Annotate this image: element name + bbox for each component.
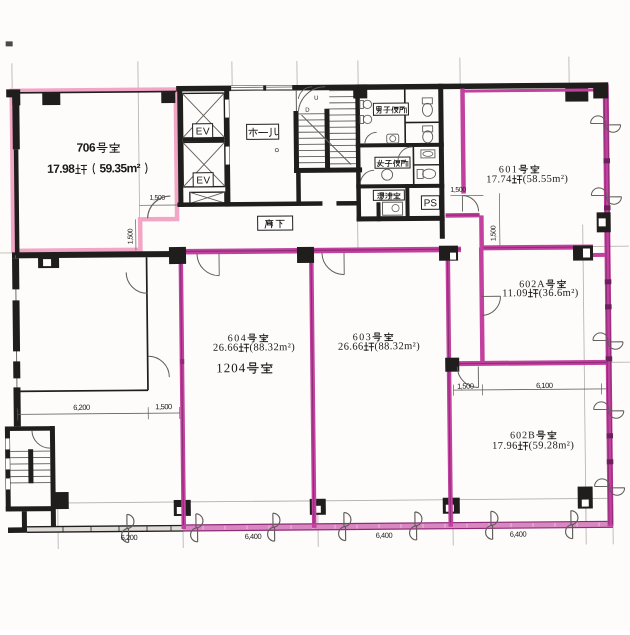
svg-text:D: D bbox=[305, 108, 310, 114]
svg-text:1,500: 1,500 bbox=[490, 225, 497, 241]
svg-text:6,400: 6,400 bbox=[510, 530, 527, 539]
svg-text:17.74: 17.74 bbox=[486, 174, 512, 185]
svg-text:1204: 1204 bbox=[216, 360, 246, 375]
svg-text:59.35m²: 59.35m² bbox=[99, 161, 141, 175]
svg-text:6,400: 6,400 bbox=[376, 531, 393, 540]
svg-text:6,200: 6,200 bbox=[73, 403, 90, 412]
svg-text:(36.6m²): (36.6m²) bbox=[539, 288, 579, 299]
svg-text:(58.55m²): (58.55m²) bbox=[523, 174, 569, 185]
svg-text:6,200: 6,200 bbox=[121, 533, 138, 542]
svg-text:1,500: 1,500 bbox=[450, 187, 466, 194]
svg-text:26.66: 26.66 bbox=[338, 342, 364, 353]
svg-text:1,500: 1,500 bbox=[149, 195, 165, 202]
svg-text:11.09: 11.09 bbox=[502, 288, 528, 299]
svg-text:17.98: 17.98 bbox=[47, 162, 75, 176]
svg-text:1,500: 1,500 bbox=[457, 382, 474, 391]
svg-text:17.96: 17.96 bbox=[492, 441, 518, 452]
svg-text:6,400: 6,400 bbox=[245, 532, 262, 541]
svg-text:EV: EV bbox=[196, 126, 210, 137]
svg-text:(88.32m²): (88.32m²) bbox=[374, 341, 420, 352]
svg-text:U: U bbox=[314, 96, 318, 102]
svg-text:PS: PS bbox=[424, 198, 438, 209]
svg-text:6,100: 6,100 bbox=[536, 381, 553, 390]
svg-text:1,500: 1,500 bbox=[127, 228, 134, 244]
svg-text:26.66: 26.66 bbox=[213, 343, 239, 354]
svg-text:706: 706 bbox=[77, 140, 97, 154]
svg-text:1,500: 1,500 bbox=[155, 402, 172, 411]
svg-text:EV: EV bbox=[196, 175, 210, 186]
svg-text:(59.28m²): (59.28m²) bbox=[529, 440, 575, 451]
svg-text:(88.32m²): (88.32m²) bbox=[249, 342, 295, 353]
